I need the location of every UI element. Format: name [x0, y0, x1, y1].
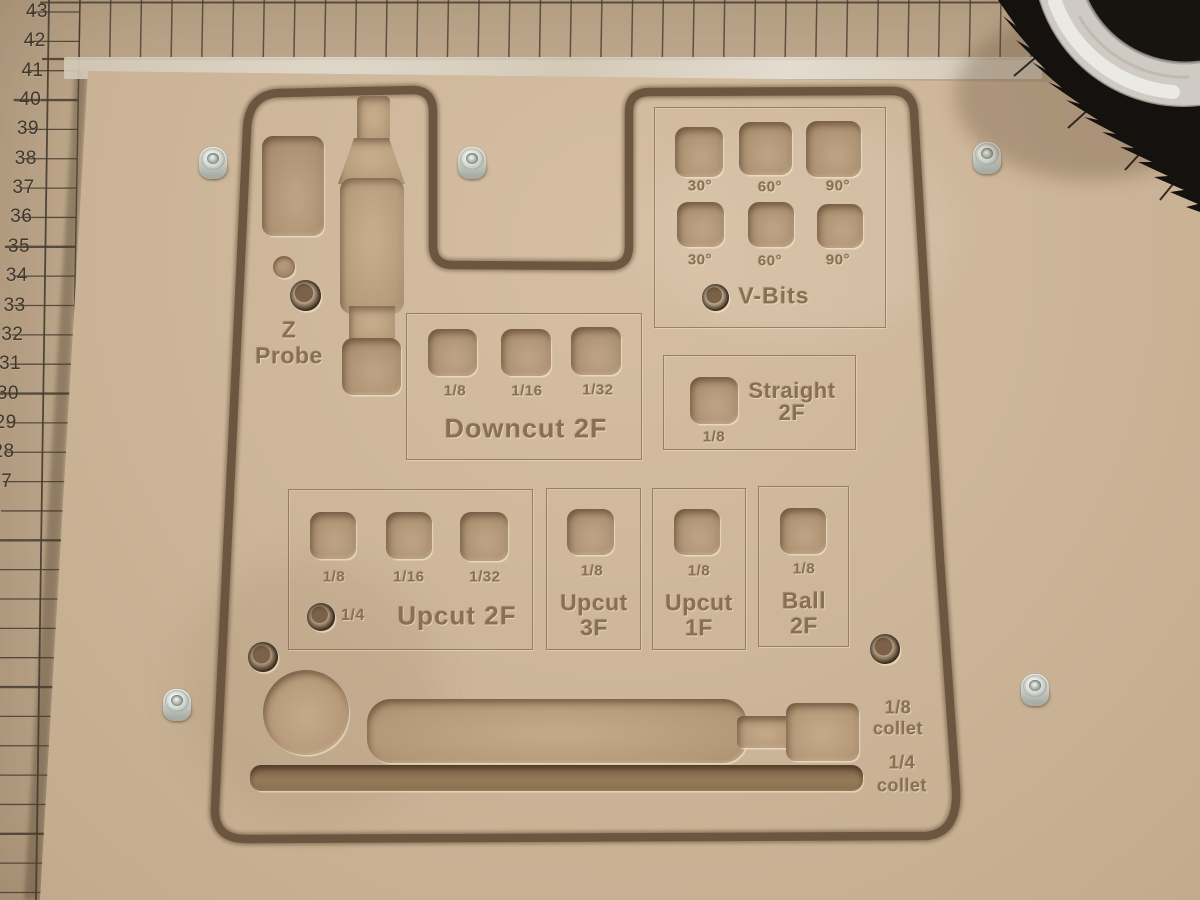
ruler-number: 29 [0, 412, 17, 434]
ball2f-pocket [780, 508, 826, 554]
upcut1f-title-line2: 1F [685, 615, 713, 642]
vbit-label: 90° [826, 178, 850, 195]
cap-screw [1020, 672, 1050, 709]
downcut-pocket [571, 327, 621, 375]
upcut2f-quarter-label: 1/4 [341, 607, 365, 625]
vbit-pocket [739, 122, 792, 175]
quarter-collet-slot [250, 765, 863, 791]
ruler-number: 34 [6, 265, 28, 287]
upcut3f-title-line2: 3F [580, 615, 608, 642]
vbit-pocket [675, 127, 723, 177]
cap-screw [457, 145, 487, 182]
ruler-number: 37 [13, 177, 35, 199]
ruler-number: 28 [0, 441, 15, 463]
ruler-number: 43 [26, 1, 48, 23]
vbit-label: 30° [688, 178, 712, 195]
ball2f-title-line1: Ball [782, 588, 826, 615]
upcut2f-label: 1/16 [393, 569, 424, 586]
zprobe-lower-pocket [342, 338, 401, 395]
ruler-number: 27 [0, 471, 12, 493]
wrench-slot-neck [737, 716, 793, 748]
ruler-number: 40 [19, 89, 41, 111]
ruler-number: 41 [21, 60, 43, 82]
upcut2f-label: 1/8 [323, 569, 345, 586]
upcut2f-label: 1/32 [469, 569, 500, 586]
ruler-number: 36 [10, 206, 32, 228]
straight-pocket [690, 377, 738, 424]
upcut3f-title-line1: Upcut [560, 590, 628, 617]
cap-screw [198, 145, 228, 182]
upcut1f-label: 1/8 [688, 563, 710, 580]
right-mount-hole [870, 634, 900, 664]
upcut1f-title-line1: Upcut [665, 590, 733, 617]
ruler-number: 38 [15, 148, 37, 170]
ruler-number: 31 [0, 353, 21, 375]
ball2f-label: 1/8 [793, 561, 815, 578]
ruler-number: 30 [0, 383, 19, 405]
upcut2f-quarter-hole [307, 603, 335, 631]
ruler-number: 32 [1, 324, 23, 346]
straight-label: 1/8 [703, 429, 725, 446]
vbit-pocket [817, 204, 863, 248]
zprobe-title-line2: Probe [255, 343, 323, 370]
zprobe-rect-pocket [262, 136, 324, 236]
zprobe-title-line1: Z [282, 317, 297, 344]
round-pocket [263, 670, 349, 755]
vbit-pocket [806, 121, 861, 177]
upcut3f-label: 1/8 [581, 563, 603, 580]
vbit-label: 60° [758, 253, 782, 270]
ruler-number: 42 [24, 30, 46, 52]
upcut2f-pocket [460, 512, 508, 561]
zprobe-small-hole [273, 256, 295, 278]
wrench-slot-end [786, 703, 859, 761]
vbit-label: 90° [826, 252, 850, 269]
vbit-label: 60° [758, 179, 782, 196]
zprobe-bottle-neck [357, 96, 390, 142]
ruler-number: 33 [4, 295, 26, 317]
upcut3f-pocket [567, 509, 614, 555]
vbits-title: V-Bits [738, 283, 809, 310]
downcut2f-title: Downcut 2F [445, 414, 608, 445]
zprobe-bottle-body [340, 178, 404, 314]
photo-cnc-bit-tray: 4342414039383736353433323130292827 Z Pro… [0, 0, 1200, 900]
eighth-collet-label-line1: 1/8 [885, 698, 912, 719]
quarter-collet-label-line1: 1/4 [889, 753, 916, 774]
ruler-number: 35 [8, 236, 30, 258]
downcut-label: 1/8 [444, 383, 466, 400]
cap-screw [162, 687, 192, 724]
upcut1f-pocket [674, 509, 720, 555]
downcut-label: 1/32 [582, 382, 613, 399]
upcut2f-title: Upcut 2F [397, 601, 516, 632]
wrench-slot-body [367, 699, 747, 763]
ball2f-title-line2: 2F [790, 613, 818, 640]
vbit-label: 30° [688, 252, 712, 269]
upcut2f-pocket [310, 512, 356, 559]
left-mount-hole [248, 642, 278, 672]
vbit-pocket [748, 202, 794, 247]
downcut-label: 1/16 [511, 383, 542, 400]
downcut-pocket [501, 329, 551, 376]
zprobe-large-hole [290, 280, 321, 311]
downcut-pocket [428, 329, 477, 376]
ruler-number: 39 [17, 118, 39, 140]
upcut2f-pocket [386, 512, 432, 559]
eighth-collet-label-line2: collet [873, 719, 923, 740]
dust-boot-brush [940, 0, 1200, 212]
straight2f-title-line2: 2F [779, 400, 806, 426]
quarter-collet-label-line2: collet [877, 776, 927, 797]
vbit-pocket [677, 202, 724, 247]
vbits-hole [702, 284, 729, 311]
